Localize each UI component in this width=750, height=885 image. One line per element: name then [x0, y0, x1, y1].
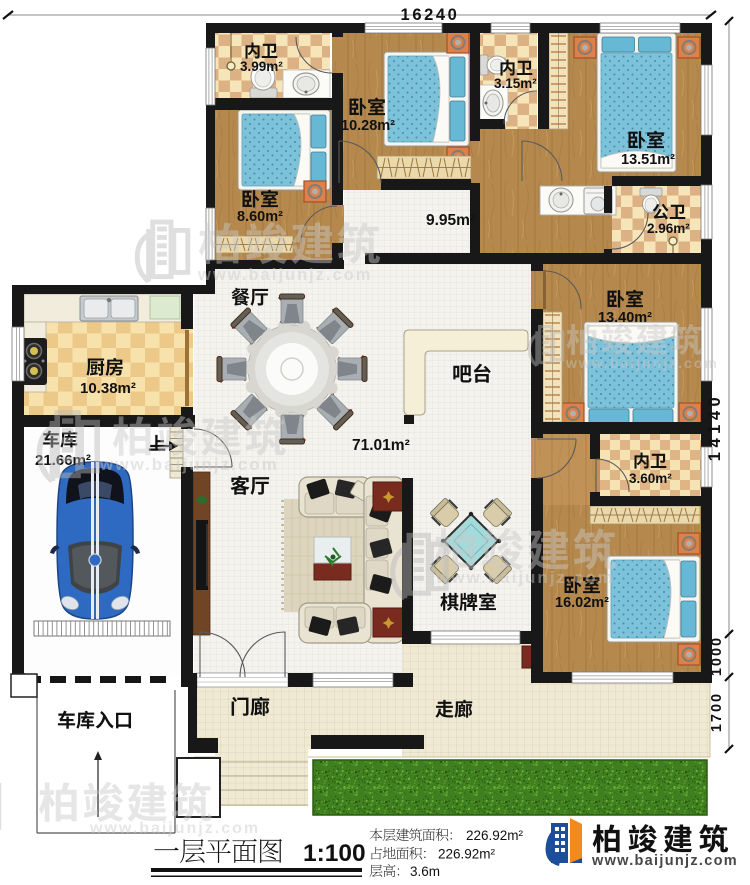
svg-text:13.51m²: 13.51m²	[621, 152, 675, 168]
svg-text:71.01m²: 71.01m²	[352, 437, 410, 454]
svg-text:226.92m²: 226.92m²	[466, 828, 524, 843]
svg-text:226.92m²: 226.92m²	[438, 847, 496, 862]
svg-text:1:100: 1:100	[303, 840, 366, 867]
svg-text:1000: 1000	[709, 636, 725, 676]
svg-text:www.baijunjz.com: www.baijunjz.com	[435, 568, 615, 587]
svg-text:1700: 1700	[709, 692, 725, 732]
svg-text:2.96m²: 2.96m²	[647, 221, 690, 236]
svg-text:www.baijunjz.com: www.baijunjz.com	[565, 355, 719, 371]
svg-text:3.99m²: 3.99m²	[240, 59, 283, 74]
svg-text:www.baijunjz.com: www.baijunjz.com	[89, 820, 260, 837]
svg-text:9.95m²: 9.95m²	[426, 212, 475, 229]
svg-text:10.38m²: 10.38m²	[80, 380, 136, 397]
svg-text:3.15m²: 3.15m²	[494, 76, 537, 91]
svg-text:www.baijunjz.com: www.baijunjz.com	[591, 853, 738, 869]
svg-text:16.02m²: 16.02m²	[555, 595, 609, 611]
svg-text:3.60m²: 3.60m²	[629, 471, 672, 486]
svg-text:13.40m²: 13.40m²	[598, 310, 652, 326]
svg-text:www.baijunjz.com: www.baijunjz.com	[197, 266, 372, 284]
svg-text:www.baijunjz.com: www.baijunjz.com	[99, 455, 279, 474]
svg-text:10.28m²: 10.28m²	[341, 118, 395, 134]
svg-text:3.6m: 3.6m	[410, 864, 440, 879]
svg-text:14140: 14140	[706, 393, 724, 461]
svg-text:16240: 16240	[401, 6, 460, 24]
svg-text:8.60m²: 8.60m²	[237, 209, 283, 225]
